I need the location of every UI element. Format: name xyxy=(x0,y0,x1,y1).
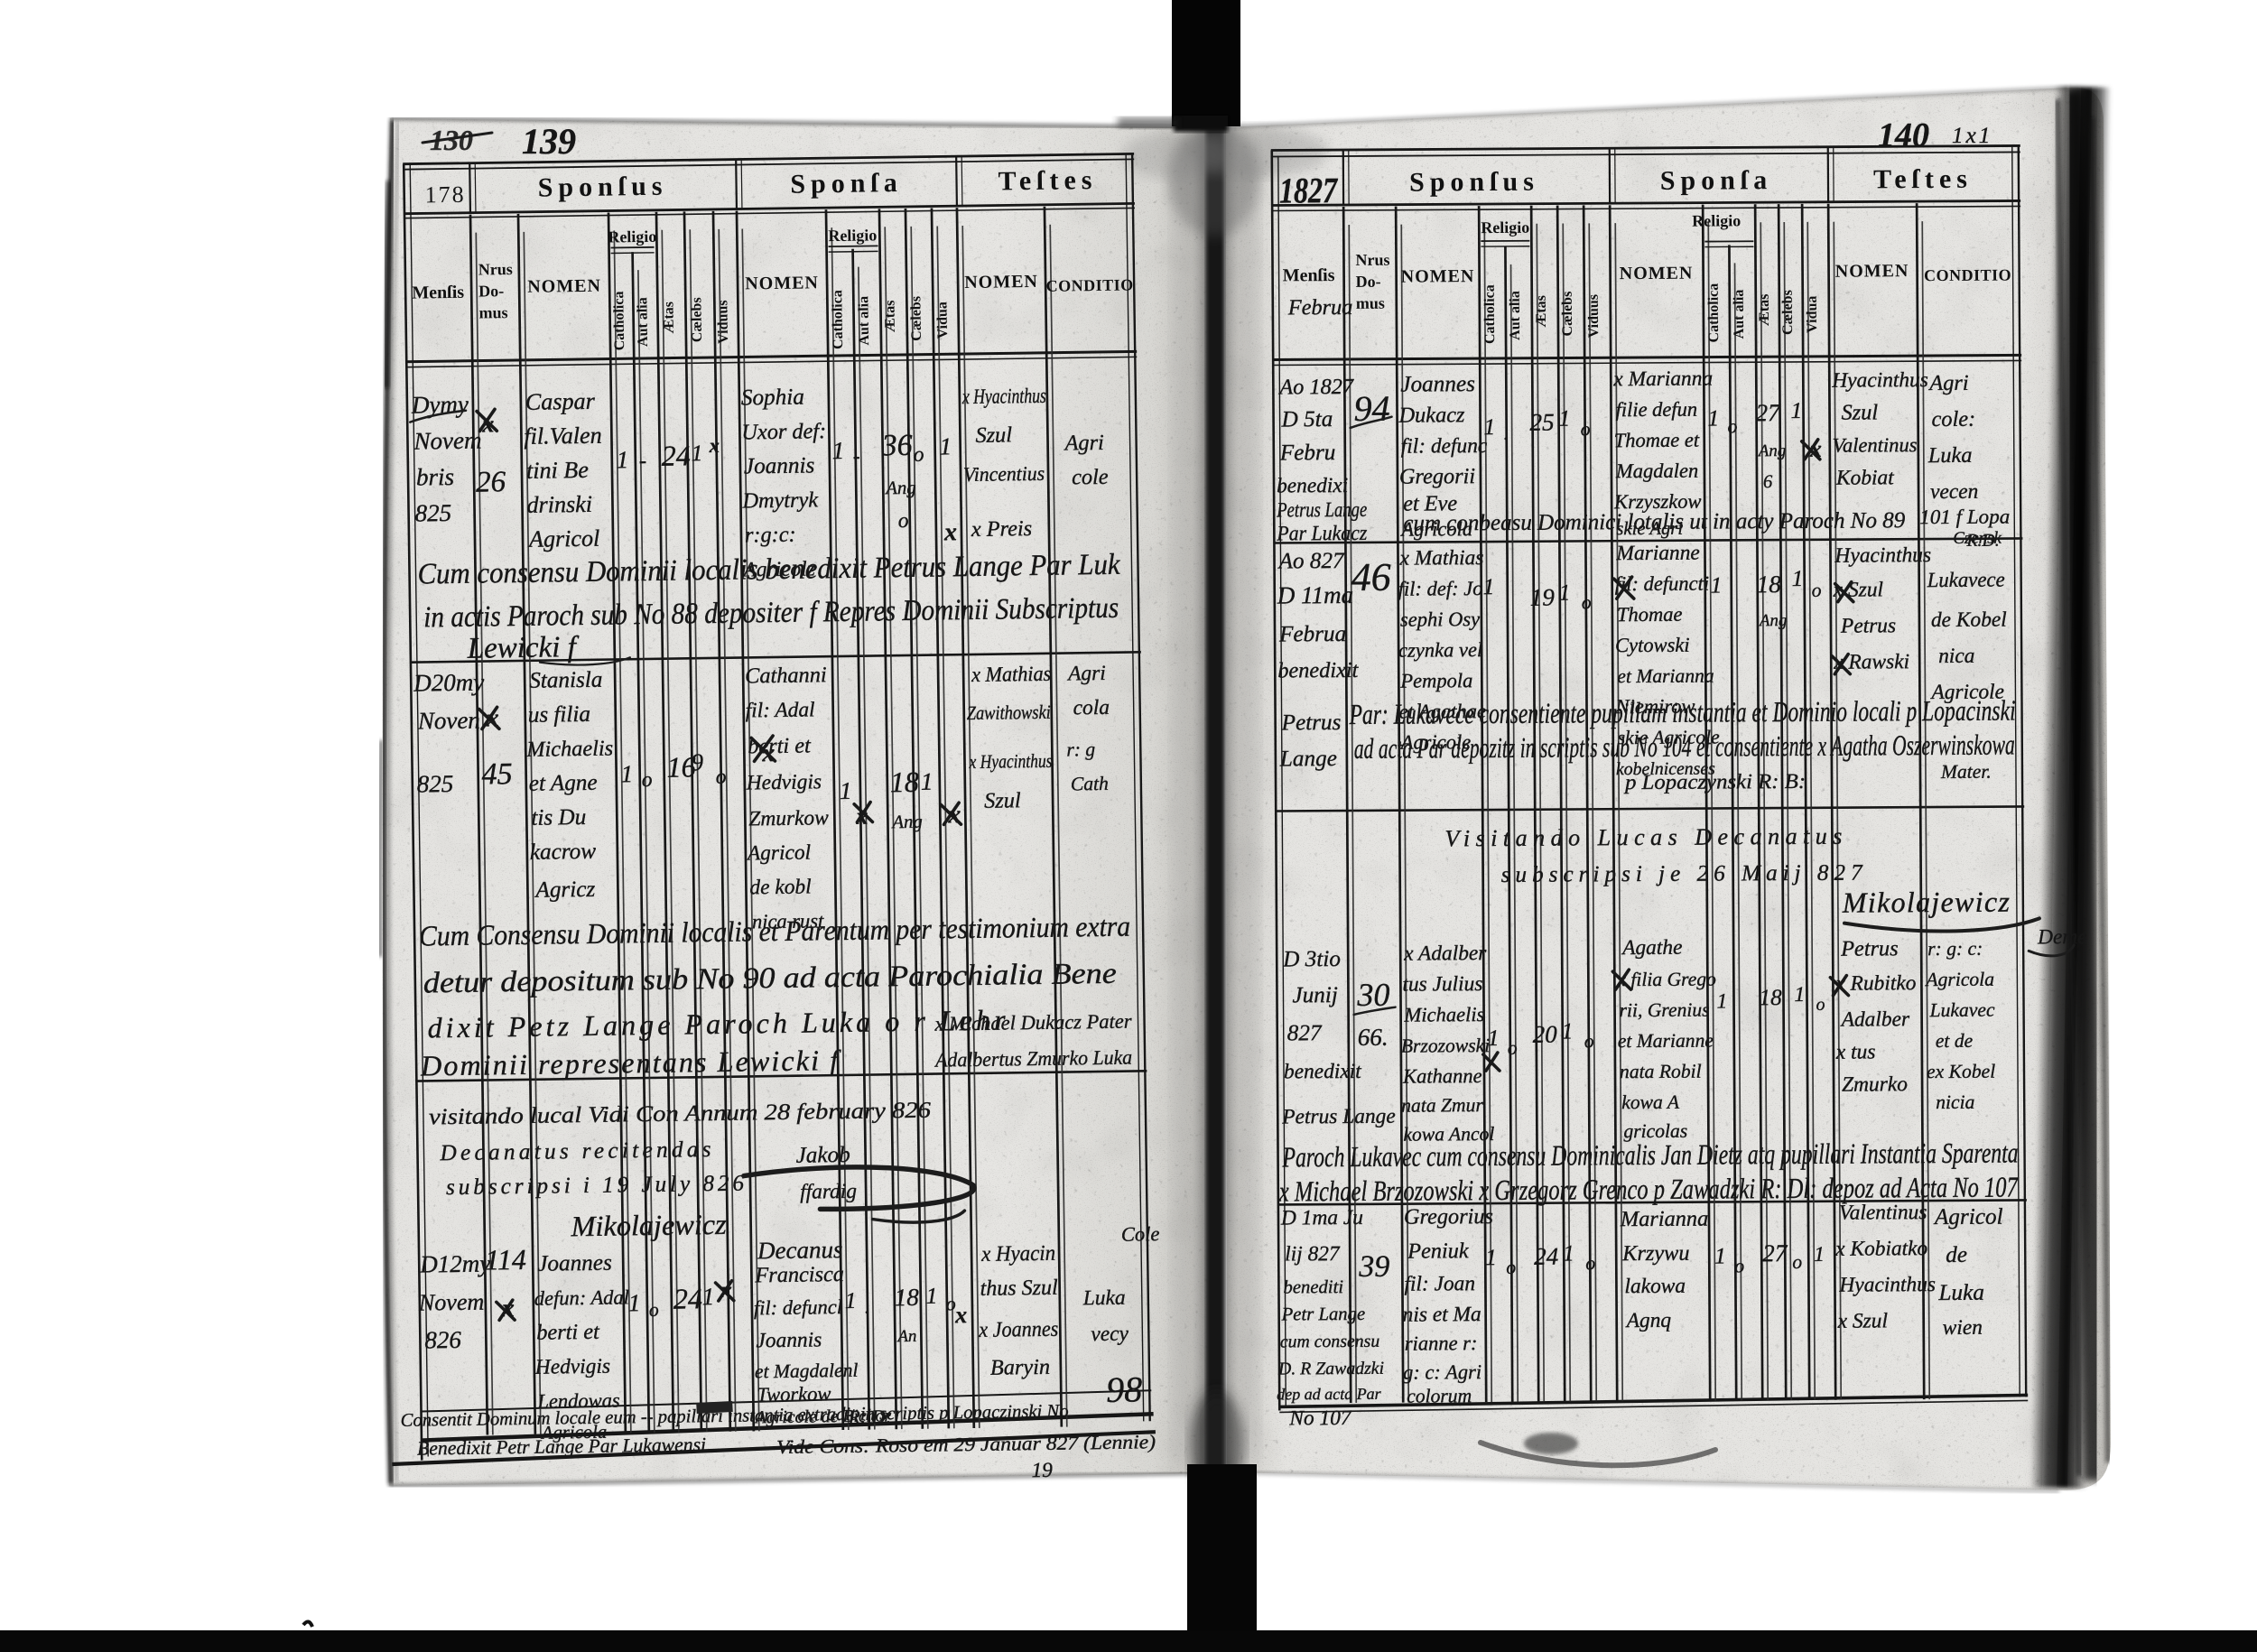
svg-text:Zawithowski: Zawithowski xyxy=(967,701,1051,724)
svg-text:Catholica: Catholica xyxy=(611,291,627,350)
svg-text:Do-: Do- xyxy=(478,282,504,300)
svg-text:NOMEN: NOMEN xyxy=(1835,261,1909,281)
svg-text:Catholica: Catholica xyxy=(1482,284,1498,344)
svg-text:o: o xyxy=(1812,580,1822,601)
svg-text:Joannes: Joannes xyxy=(537,1251,612,1276)
svg-text:30: 30 xyxy=(1356,977,1389,1013)
svg-text:1: 1 xyxy=(1563,1241,1574,1266)
svg-text:1: 1 xyxy=(1716,989,1727,1013)
svg-text:benediti: benediti xyxy=(1283,1277,1343,1297)
svg-text:rianne r:: rianne r: xyxy=(1405,1332,1478,1354)
svg-text:45: 45 xyxy=(481,757,513,791)
svg-text:rii, Grenius: rii, Grenius xyxy=(1620,999,1710,1022)
svg-text:Peniuk: Peniuk xyxy=(1407,1239,1470,1263)
svg-text:No 107: No 107 xyxy=(1288,1406,1352,1430)
svg-text:o: o xyxy=(1582,591,1592,613)
svg-text:Joannes: Joannes xyxy=(1400,372,1475,397)
svg-text:1: 1 xyxy=(1559,580,1571,605)
svg-text:1: 1 xyxy=(1488,1026,1500,1051)
svg-text:1: 1 xyxy=(831,437,844,464)
svg-text:1: 1 xyxy=(840,777,852,804)
svg-text:fil: Adal: fil: Adal xyxy=(746,698,815,722)
svg-text:Dmytryk: Dmytryk xyxy=(741,487,819,513)
svg-text:Sponſa: Sponſa xyxy=(790,168,903,200)
svg-text:tus Julius: tus Julius xyxy=(1402,972,1482,997)
svg-text:x Kobiatko: x Kobiatko xyxy=(1834,1237,1927,1261)
svg-text:Kobiat: Kobiat xyxy=(1835,466,1894,489)
svg-text:140: 140 xyxy=(1878,116,1929,154)
svg-text:1: 1 xyxy=(1708,406,1720,431)
svg-text:1: 1 xyxy=(1792,567,1804,591)
svg-text:D 1ma Ju: D 1ma Ju xyxy=(1280,1206,1363,1230)
svg-text:27: 27 xyxy=(1755,399,1781,426)
svg-text:vecy: vecy xyxy=(1091,1323,1129,1347)
svg-text:Francisca: Francisca xyxy=(754,1262,844,1287)
svg-text:et Agne: et Agne xyxy=(529,771,598,796)
svg-text:D20my: D20my xyxy=(413,669,484,697)
svg-text:D12my: D12my xyxy=(419,1249,490,1277)
svg-text:Noven: Noven xyxy=(417,707,480,735)
svg-text:Luka: Luka xyxy=(1927,443,1973,468)
svg-text:o: o xyxy=(716,766,727,789)
svg-text:Junij: Junij xyxy=(1292,983,1338,1007)
svg-text:1: 1 xyxy=(926,1285,938,1309)
svg-text:cole: cole xyxy=(1072,465,1109,490)
svg-text:Nrus: Nrus xyxy=(1355,251,1389,269)
svg-text:cum conbeasu Dominici lotalis: cum conbeasu Dominici lotalis ut in acty… xyxy=(1403,508,1906,535)
svg-text:o: o xyxy=(1506,1257,1516,1278)
svg-text:20: 20 xyxy=(1533,1021,1558,1048)
svg-text:18: 18 xyxy=(1759,986,1782,1010)
svg-text:Agnq: Agnq xyxy=(1625,1309,1672,1332)
svg-text:24: 24 xyxy=(661,439,690,471)
svg-text:berti et: berti et xyxy=(536,1320,600,1345)
svg-text:.: . xyxy=(1504,424,1509,444)
svg-text:Februa: Februa xyxy=(1287,295,1353,320)
svg-text:1: 1 xyxy=(692,441,703,466)
svg-text:Ang: Ang xyxy=(1758,611,1788,630)
svg-text:o: o xyxy=(1584,1030,1594,1052)
svg-text:NOMEN: NOMEN xyxy=(527,276,601,297)
svg-text:Teſtes: Teſtes xyxy=(1873,164,1973,195)
svg-text:Agri: Agri xyxy=(1927,371,1969,395)
svg-text:Ætas: Ætas xyxy=(1757,294,1772,327)
svg-text:nica: nica xyxy=(1938,645,1974,668)
svg-text:D. R Zawadzki: D. R Zawadzki xyxy=(1277,1359,1384,1379)
svg-text:o: o xyxy=(1585,1252,1595,1274)
svg-text:Adalber: Adalber xyxy=(1840,1007,1910,1031)
svg-text:19: 19 xyxy=(1530,584,1556,611)
svg-text:Ao 1827: Ao 1827 xyxy=(1277,375,1354,400)
svg-text:Ang: Ang xyxy=(890,812,923,832)
svg-text:Krzywu: Krzywu xyxy=(1621,1241,1689,1266)
svg-text:Cathanni: Cathanni xyxy=(745,663,827,688)
svg-text:Ang: Ang xyxy=(1757,441,1787,460)
svg-text:Cytowski: Cytowski xyxy=(1615,634,1690,657)
svg-text:x Mathias: x Mathias xyxy=(971,663,1051,687)
svg-text:Thomae: Thomae xyxy=(1617,603,1683,626)
svg-text:nata Robil: nata Robil xyxy=(1620,1061,1702,1083)
svg-text:Religio: Religio xyxy=(1692,211,1741,229)
svg-text:CONDITIO: CONDITIO xyxy=(1046,275,1134,294)
svg-text:Religio: Religio xyxy=(828,226,877,245)
svg-text:lakowa: lakowa xyxy=(1624,1275,1686,1298)
svg-text:Ætas: Ætas xyxy=(1534,295,1549,328)
svg-text:r: g: c:: r: g: c: xyxy=(1927,938,1983,960)
svg-text:Sophia: Sophia xyxy=(741,385,804,411)
svg-text:Agri: Agri xyxy=(1066,662,1106,686)
svg-text:D 3tio: D 3tio xyxy=(1282,947,1341,971)
svg-text:x Joannes: x Joannes xyxy=(978,1317,1058,1342)
svg-text:An: An xyxy=(896,1327,916,1346)
svg-text:66.: 66. xyxy=(1358,1024,1389,1051)
svg-text:Agricol: Agricol xyxy=(1933,1205,2003,1230)
svg-text:Novem: Novem xyxy=(418,1289,485,1316)
svg-text:Mater.: Mater. xyxy=(1940,761,1992,783)
svg-text:Stanisla: Stanisla xyxy=(529,668,603,693)
svg-text:Cælebs: Cælebs xyxy=(1780,290,1796,335)
svg-text:1827: 1827 xyxy=(1279,170,1339,210)
svg-text:Tworkow: Tworkow xyxy=(757,1382,831,1406)
svg-text:1: 1 xyxy=(1711,573,1723,598)
svg-text:Sponſus: Sponſus xyxy=(1409,167,1539,198)
svg-text:o: o xyxy=(649,1299,659,1321)
svg-text:defun: Adal: defun: Adal xyxy=(534,1285,630,1309)
svg-text:p Lopaczynski R: B:: p Lopaczynski R: B: xyxy=(1623,770,1806,794)
svg-text:x Hyacinthus: x Hyacinthus xyxy=(961,385,1046,409)
svg-text:19: 19 xyxy=(1031,1459,1053,1482)
svg-text:1: 1 xyxy=(1483,575,1495,599)
svg-text:cole:: cole: xyxy=(1932,407,1976,432)
svg-text:Benedixit Petr Lange Par Lukaw: Benedixit Petr Lange Par Lukawensi xyxy=(417,1434,706,1459)
svg-text:Sponſus: Sponſus xyxy=(537,172,667,203)
svg-text:98: 98 xyxy=(1106,1369,1143,1410)
svg-text:1: 1 xyxy=(1562,1019,1574,1044)
svg-text:cola: cola xyxy=(1073,696,1110,720)
svg-text:colorum: colorum xyxy=(1407,1385,1472,1406)
svg-text:Lange: Lange xyxy=(1279,747,1337,771)
svg-text:Szul: Szul xyxy=(975,422,1012,448)
svg-text:Novem: Novem xyxy=(413,427,481,455)
svg-text:R.D.: R.D. xyxy=(1965,531,1999,551)
svg-text:Par: Lukavece consentiente pup: Par: Lukavece consentiente pupillam inst… xyxy=(1349,693,2016,730)
svg-text:Joannis: Joannis xyxy=(756,1328,822,1352)
svg-text:1: 1 xyxy=(628,1289,641,1316)
svg-text:x filia Grego: x filia Grego xyxy=(1616,969,1716,991)
svg-text:Petrus: Petrus xyxy=(1281,710,1342,735)
svg-text:Valentinus: Valentinus xyxy=(1833,433,1918,457)
svg-text:Ang: Ang xyxy=(884,478,916,498)
svg-text:178: 178 xyxy=(424,181,465,209)
svg-text:o: o xyxy=(1581,418,1591,440)
svg-text:x: x xyxy=(501,1295,515,1323)
svg-text:Petrus: Petrus xyxy=(1840,614,1896,637)
svg-text:27: 27 xyxy=(1762,1239,1788,1267)
svg-text:o: o xyxy=(1792,1251,1802,1273)
svg-text:Brzozowski: Brzozowski xyxy=(1401,1035,1491,1057)
svg-text:x Hyacin: x Hyacin xyxy=(980,1241,1055,1267)
svg-text:Michaelis: Michaelis xyxy=(525,737,613,762)
svg-text:Luka: Luka xyxy=(1082,1286,1126,1311)
svg-text:o: o xyxy=(1728,415,1738,437)
svg-text:benedixit: benedixit xyxy=(1284,1060,1361,1084)
svg-text:Mikolajewicz: Mikolajewicz xyxy=(570,1208,727,1242)
svg-text:D 5ta: D 5ta xyxy=(1280,407,1333,432)
svg-text:o: o xyxy=(898,509,909,533)
svg-text:1: 1 xyxy=(702,1283,715,1310)
svg-text:et de: et de xyxy=(1936,1030,1974,1052)
svg-text:1: 1 xyxy=(1558,406,1570,431)
svg-text:Aut alia: Aut alia xyxy=(856,296,872,346)
svg-text:kacrow: kacrow xyxy=(530,840,597,865)
svg-text:9: 9 xyxy=(691,748,703,775)
svg-text:Cath: Cath xyxy=(1071,773,1109,795)
svg-text:wien: wien xyxy=(1943,1316,1983,1340)
svg-text:Petrus: Petrus xyxy=(1840,936,1899,961)
svg-text:Paroch Lukavec cum consensu: Paroch Lukavec cum consensu Dominicalis … xyxy=(1282,1136,2019,1173)
svg-text:fil: def: Jo: fil: def: Jo xyxy=(1398,577,1483,600)
svg-text:46: 46 xyxy=(1351,555,1390,599)
svg-text:Baryin: Baryin xyxy=(990,1355,1051,1380)
svg-text:r:g:c:: r:g:c: xyxy=(745,523,796,548)
svg-text:Cælebs: Cælebs xyxy=(908,296,924,341)
svg-text:fil: Joan: fil: Joan xyxy=(1404,1272,1475,1295)
svg-text:Teſtes: Teſtes xyxy=(998,165,1097,197)
svg-text:Hyacinthus: Hyacinthus xyxy=(1834,543,1931,568)
svg-text:826: 826 xyxy=(424,1326,461,1354)
svg-text:Zmurko: Zmurko xyxy=(1842,1072,1908,1096)
svg-text:x Mathias: x Mathias xyxy=(1398,546,1483,571)
svg-text:1: 1 xyxy=(620,760,633,787)
svg-text:r: g: r: g xyxy=(1066,738,1095,760)
svg-text:x Marianna: x Marianna xyxy=(1612,367,1713,392)
svg-text:Par Lukacz: Par Lukacz xyxy=(1276,522,1367,546)
svg-text:vecen: vecen xyxy=(1930,480,1978,504)
svg-text:fil: defunc: fil: defunc xyxy=(1401,434,1488,459)
svg-text:1: 1 xyxy=(939,432,952,459)
svg-text:et Magdalenl: et Magdalenl xyxy=(755,1360,859,1383)
svg-text:Jakob: Jakob xyxy=(795,1143,850,1168)
svg-text:36: 36 xyxy=(880,429,913,462)
svg-text:Caspar: Caspar xyxy=(525,388,596,415)
svg-text:ex Kobel: ex Kobel xyxy=(1927,1061,1995,1082)
svg-text:Gregorii: Gregorii xyxy=(1399,464,1476,489)
svg-text:18: 18 xyxy=(895,1284,920,1311)
svg-text:dep ad acta Par: dep ad acta Par xyxy=(1277,1385,1382,1404)
svg-text:Hedvigis: Hedvigis xyxy=(746,770,822,794)
svg-text:Cælebs: Cælebs xyxy=(689,297,705,342)
svg-text:Viduus: Viduus xyxy=(1586,294,1602,338)
svg-text:6: 6 xyxy=(1763,472,1773,492)
svg-text:x: x xyxy=(954,1302,967,1328)
svg-text:1: 1 xyxy=(921,768,933,795)
svg-text:thus Szul: thus Szul xyxy=(980,1276,1058,1301)
svg-text:Do-: Do- xyxy=(1356,273,1381,291)
svg-text:et Marianna: et Marianna xyxy=(1617,665,1714,688)
svg-text:1x1: 1x1 xyxy=(1952,124,1992,148)
svg-text:25: 25 xyxy=(1530,409,1555,436)
svg-text:mus: mus xyxy=(1356,294,1385,312)
svg-text:Cælebs: Cælebs xyxy=(1560,292,1575,337)
svg-text:Nrus: Nrus xyxy=(478,260,513,279)
svg-text:101 f Lopa: 101 f Lopa xyxy=(1919,506,2010,529)
svg-text:Marianna: Marianna xyxy=(1620,1207,1708,1232)
svg-text:1: 1 xyxy=(1484,415,1496,440)
svg-text:cum consensu: cum consensu xyxy=(1280,1332,1380,1352)
svg-text:1: 1 xyxy=(1794,983,1805,1007)
svg-text:1: 1 xyxy=(1485,1246,1497,1270)
svg-text:us filia: us filia xyxy=(528,702,591,728)
svg-text:Ætas: Ætas xyxy=(882,301,897,333)
svg-text:mus: mus xyxy=(478,303,507,321)
svg-text:Gregorius: Gregorius xyxy=(1404,1204,1493,1230)
svg-text:1: 1 xyxy=(1814,1243,1825,1267)
svg-text:114: 114 xyxy=(485,1243,526,1276)
svg-text:x: x xyxy=(720,1278,732,1303)
svg-text:39: 39 xyxy=(1358,1250,1389,1284)
svg-text:Cole: Cole xyxy=(1121,1222,1160,1246)
svg-text:-: - xyxy=(853,445,860,469)
svg-text:Lewicki f: Lewicki f xyxy=(466,631,579,665)
svg-text:.: . xyxy=(865,1298,869,1318)
svg-text:filie defun: filie defun xyxy=(1615,398,1697,422)
svg-text:sephi Osy: sephi Osy xyxy=(1400,608,1480,631)
svg-text:Aut alia: Aut alia xyxy=(635,297,651,347)
svg-text:Agricz: Agricz xyxy=(534,877,595,903)
svg-text:825: 825 xyxy=(417,770,454,798)
svg-text:1: 1 xyxy=(617,446,629,473)
svg-text:nata Zmur: nata Zmur xyxy=(1401,1094,1483,1117)
svg-text:18: 18 xyxy=(890,766,919,798)
svg-text:Hyacinthus: Hyacinthus xyxy=(1838,1273,1936,1297)
svg-text:Marianne: Marianne xyxy=(1615,542,1699,566)
svg-text:NOMEN: NOMEN xyxy=(1620,264,1694,283)
svg-text:-: - xyxy=(639,449,647,473)
svg-text:x Szul: x Szul xyxy=(1837,1309,1888,1332)
svg-text:Petrus Lange: Petrus Lange xyxy=(1276,498,1367,523)
svg-text:Uxor def:: Uxor def: xyxy=(741,419,826,444)
svg-text:Religio: Religio xyxy=(1481,218,1529,237)
svg-text:1: 1 xyxy=(1714,1244,1726,1268)
svg-text:NOMEN: NOMEN xyxy=(745,273,819,293)
svg-text:nicia: nicia xyxy=(1936,1091,1974,1113)
svg-text:tini Be: tini Be xyxy=(526,457,589,484)
svg-text:x tus: x tus xyxy=(1835,1040,1876,1063)
svg-text:benedixi: benedixi xyxy=(1277,474,1348,497)
svg-text:Menſis: Menſis xyxy=(412,283,464,303)
svg-text:Agathe: Agathe xyxy=(1621,936,1682,960)
svg-text:Valentinus: Valentinus xyxy=(1839,1201,1927,1225)
svg-text:bris: bris xyxy=(416,463,454,491)
svg-text:Kathanne: Kathanne xyxy=(1402,1064,1482,1088)
svg-text:Pempola: Pempola xyxy=(1399,669,1472,691)
svg-text:Lukavece: Lukavece xyxy=(1927,569,2005,593)
svg-text:Aut alia: Aut alia xyxy=(1732,290,1747,339)
svg-text:24: 24 xyxy=(1534,1243,1558,1270)
svg-text:Lukavec: Lukavec xyxy=(1929,999,1996,1021)
svg-text:o: o xyxy=(914,443,924,467)
svg-text:825: 825 xyxy=(414,499,451,527)
svg-text:NOMEN: NOMEN xyxy=(964,272,1038,292)
svg-text:26: 26 xyxy=(476,466,506,498)
svg-text:R: D:: R: D: xyxy=(847,1406,892,1428)
svg-text:Petr Lange: Petr Lange xyxy=(1281,1304,1366,1325)
svg-text:Religio: Religio xyxy=(608,227,656,246)
svg-text:x Hyacinthus: x Hyacinthus xyxy=(969,750,1053,773)
svg-text:x Michael Dukacz Pater: x Michael Dukacz Pater xyxy=(933,1010,1132,1035)
svg-text:et Marianne: et Marianne xyxy=(1618,1030,1714,1053)
svg-text:Catholica: Catholica xyxy=(830,290,846,349)
svg-text:Magdalen: Magdalen xyxy=(1615,459,1698,483)
svg-text:benedixit: benedixit xyxy=(1277,658,1359,683)
svg-text:x Adalber: x Adalber xyxy=(1403,942,1487,966)
svg-text:Joannis: Joannis xyxy=(744,453,815,478)
svg-text:Agri: Agri xyxy=(1063,431,1104,456)
svg-text:Deme: Deme xyxy=(2037,925,2087,949)
svg-text:Agricol: Agricol xyxy=(527,525,600,552)
svg-text:Petrus Lange: Petrus Lange xyxy=(1281,1105,1396,1129)
svg-text:Hyacinthus: Hyacinthus xyxy=(1831,368,1928,393)
svg-text:18: 18 xyxy=(1757,571,1782,598)
svg-text:827: 827 xyxy=(1287,1021,1323,1045)
svg-text:o: o xyxy=(1816,995,1825,1015)
svg-text:Szul: Szul xyxy=(984,788,1021,813)
svg-text:Sponſa: Sponſa xyxy=(1660,165,1773,196)
svg-text:1: 1 xyxy=(845,1289,857,1313)
svg-text:139: 139 xyxy=(522,121,576,162)
svg-text:Dukacz: Dukacz xyxy=(1398,403,1465,427)
svg-text:tis Du: tis Du xyxy=(531,805,586,831)
svg-text:fil.Valen: fil.Valen xyxy=(524,422,602,450)
svg-text:x: x xyxy=(708,434,720,457)
svg-text:Febru: Febru xyxy=(1279,441,1336,465)
svg-text:Vidua: Vidua xyxy=(934,302,951,339)
svg-text:Ao 827: Ao 827 xyxy=(1277,549,1345,573)
svg-text:o: o xyxy=(642,768,653,792)
svg-text:o: o xyxy=(1508,1037,1518,1059)
svg-text:czynka vel: czynka vel xyxy=(1398,638,1482,662)
svg-text:Vidua: Vidua xyxy=(1805,296,1820,333)
svg-text:1: 1 xyxy=(1790,399,1802,423)
svg-text:o: o xyxy=(1734,1255,1744,1276)
svg-text:Februa: Februa xyxy=(1278,622,1346,646)
svg-text:Szul: Szul xyxy=(1841,400,1878,424)
svg-text:24: 24 xyxy=(673,1282,702,1314)
svg-text:Viduus: Viduus xyxy=(715,300,731,344)
svg-text:nis et Ma: nis et Ma xyxy=(1403,1303,1481,1327)
svg-text:drinski: drinski xyxy=(526,491,592,518)
svg-text:Menſis: Menſis xyxy=(1283,265,1335,285)
svg-text:x Preis: x Preis xyxy=(971,516,1033,542)
svg-text:Dominii representans Lewicki f: Dominii representans Lewicki f xyxy=(420,1044,842,1082)
svg-text:ad acta Par depozitz in script: ad acta Par depozitz in scriptis sub No … xyxy=(1354,728,2015,764)
svg-text:g: c: Agri: g: c: Agri xyxy=(1403,1360,1481,1384)
svg-text:Adalbertus Zmurko Luka: Adalbertus Zmurko Luka xyxy=(933,1046,1132,1072)
svg-text:de: de xyxy=(1946,1243,1967,1267)
svg-text:ffardig: ffardig xyxy=(800,1180,857,1204)
svg-text:kowa A: kowa A xyxy=(1621,1091,1680,1113)
svg-text:Aut alia: Aut alia xyxy=(1508,291,1523,340)
svg-text:Michaelis: Michaelis xyxy=(1404,1003,1485,1026)
svg-text:D 11ma: D 11ma xyxy=(1277,581,1353,609)
svg-text:fil: defuncl: fil: defuncl xyxy=(754,1295,842,1319)
svg-text:Agricol: Agricol xyxy=(746,840,812,865)
svg-text:Decanus: Decanus xyxy=(757,1236,843,1264)
svg-text:Thomae et: Thomae et xyxy=(1614,429,1700,452)
svg-text:de kobl: de kobl xyxy=(749,875,812,899)
svg-text:Luka: Luka xyxy=(1937,1281,1984,1305)
svg-text:de Kobel: de Kobel xyxy=(1931,608,2007,633)
